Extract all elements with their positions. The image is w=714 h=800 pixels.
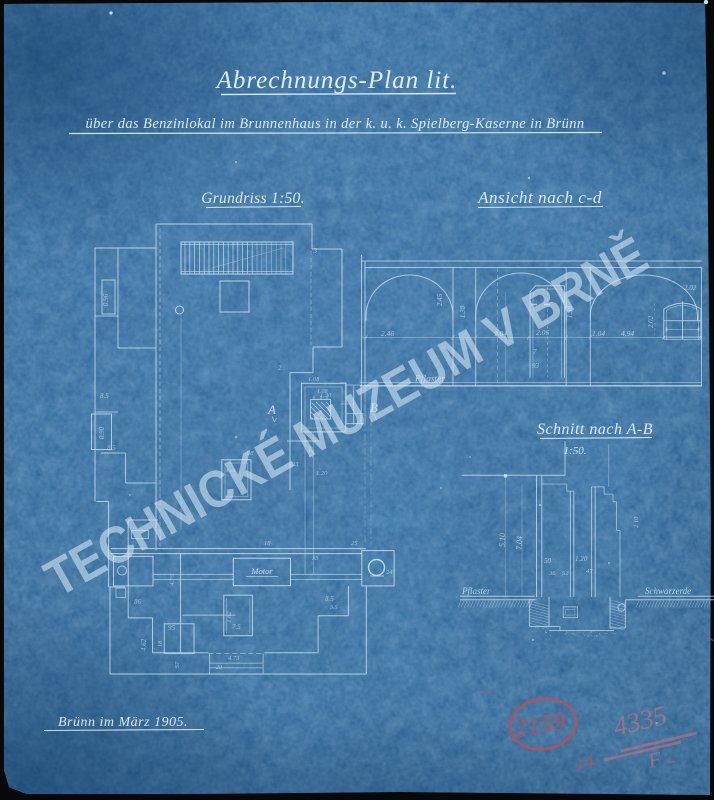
svg-text:95: 95 [168,624,176,632]
svg-text:Ansicht nach c-d: Ansicht nach c-d [477,188,602,207]
svg-text:1.08: 1.08 [308,376,320,383]
svg-text:4.94: 4.94 [621,329,634,338]
svg-text:1.08: 1.08 [317,389,328,395]
svg-text:Abrechnungs-Plan lit.: Abrechnungs-Plan lit. [215,67,458,94]
svg-text:2: 2 [278,364,282,372]
svg-text:Pflaster: Pflaster [461,586,491,596]
svg-text:47: 47 [586,568,593,575]
svg-text:1.20: 1.20 [575,555,588,563]
svg-text:8.5: 8.5 [107,444,116,452]
svg-text:8.5: 8.5 [325,595,334,603]
svg-text:0.96: 0.96 [102,293,110,306]
svg-text:18: 18 [264,540,271,547]
svg-text:3.5: 3.5 [329,605,338,611]
svg-text:2.02: 2.02 [647,315,655,328]
svg-text:57: 57 [174,661,181,668]
svg-text:über das Benzinlokal im Brunne: über das Benzinlokal im Brunnenhaus in d… [85,116,584,132]
svg-text:50: 50 [544,557,552,565]
svg-text:1.20: 1.20 [316,470,328,477]
svg-text:Motor: Motor [250,566,273,576]
svg-text:18: 18 [157,640,164,647]
svg-text:Schnitt nach A-B: Schnitt nach A-B [537,421,653,438]
svg-text:A: A [267,402,276,417]
svg-text:1.04: 1.04 [592,329,605,338]
svg-text:8.5: 8.5 [100,392,109,400]
svg-text:1:50.: 1:50. [564,445,587,457]
svg-text:2.10: 2.10 [633,516,640,528]
svg-text:36: 36 [548,570,556,577]
svg-text:1.62: 1.62 [226,611,233,623]
svg-text:4.73: 4.73 [228,655,240,662]
svg-text:451: 451 [483,688,497,698]
svg-text:2.02: 2.02 [684,284,697,292]
svg-text:2.45: 2.45 [436,293,444,306]
svg-text:7.04: 7.04 [515,536,524,550]
svg-text:52: 52 [562,570,569,577]
svg-text:s: s [566,731,571,745]
svg-text:7.5: 7.5 [232,623,241,631]
svg-text:25: 25 [351,540,358,547]
svg-text:3: 3 [313,247,318,255]
svg-text:4.62: 4.62 [140,638,148,651]
svg-text:86: 86 [134,598,142,606]
svg-text:4.70: 4.70 [169,574,176,586]
svg-text:Grundriss 1:50.: Grundriss 1:50. [201,190,305,207]
svg-text:1.30: 1.30 [459,305,467,318]
svg-text:Brünn im März 1905.: Brünn im März 1905. [58,715,188,730]
svg-text:7: 7 [533,348,537,356]
svg-text:2.46: 2.46 [381,329,394,338]
svg-text:0.90: 0.90 [98,426,106,439]
svg-text:33: 33 [311,555,319,562]
svg-text:93: 93 [532,362,540,370]
svg-text:5.10: 5.10 [498,533,507,547]
svg-text:24: 24 [386,569,393,576]
svg-text:20: 20 [216,665,222,671]
svg-text:Schwarzerde: Schwarzerde [645,586,691,596]
